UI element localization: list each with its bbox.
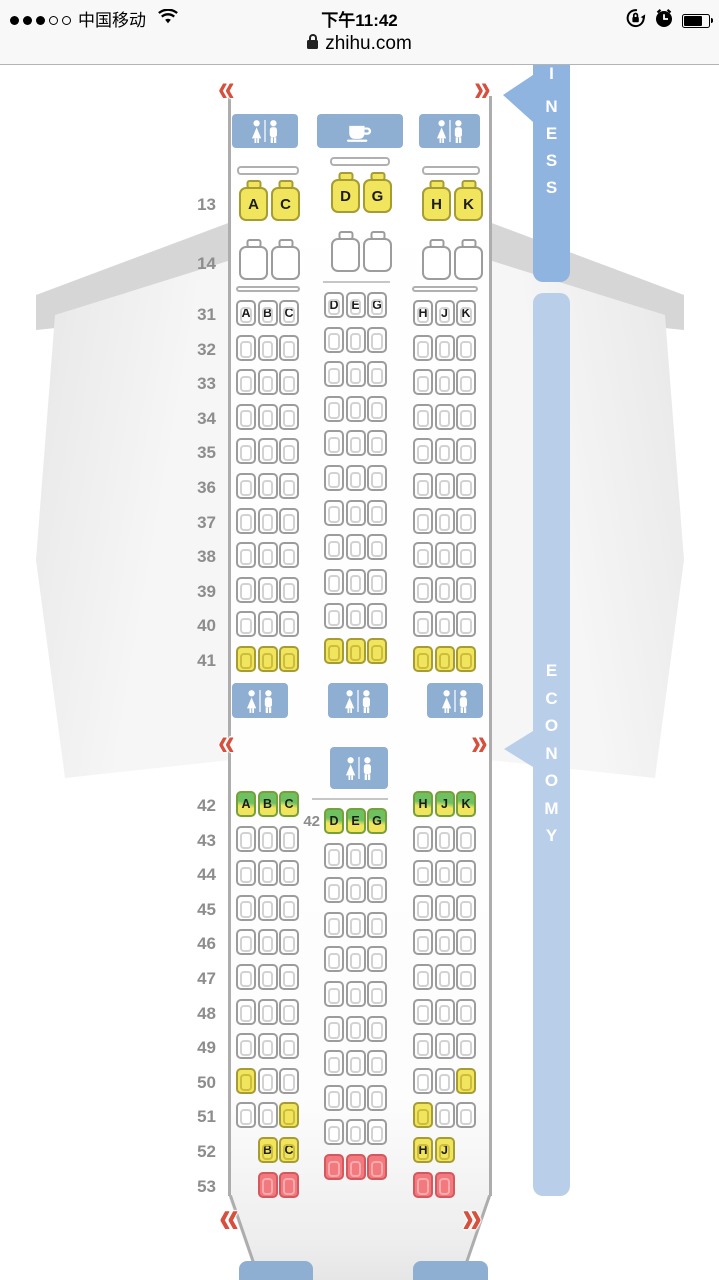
- seat-43D[interactable]: [324, 843, 344, 869]
- seat-40H[interactable]: [413, 611, 433, 637]
- seat-cushion: [283, 514, 295, 530]
- seat-34G[interactable]: [367, 396, 387, 422]
- seat-48A[interactable]: [236, 999, 256, 1025]
- seat-52C[interactable]: C: [279, 1137, 299, 1163]
- seat-37B[interactable]: [258, 508, 278, 534]
- seat-34E[interactable]: [346, 396, 366, 422]
- seat-cushion: [350, 1057, 362, 1073]
- seat-44C[interactable]: [279, 860, 299, 886]
- seat-49A[interactable]: [236, 1033, 256, 1059]
- seat-36J[interactable]: [435, 473, 455, 499]
- exit-chevron-right-icon: »: [474, 68, 491, 111]
- seat-14K[interactable]: [454, 246, 483, 280]
- seat-cushion: [371, 1091, 383, 1107]
- economy-band-letter: C: [533, 689, 570, 709]
- seat-41A[interactable]: [236, 646, 256, 672]
- economy-band-letter: O: [533, 771, 570, 791]
- seat-cushion: [283, 376, 295, 392]
- seat-35H[interactable]: [413, 438, 433, 464]
- seat-50J[interactable]: [435, 1068, 455, 1094]
- business-band-arrow-icon: [503, 75, 533, 122]
- seat-37H[interactable]: [413, 508, 433, 534]
- seat-cushion: [328, 884, 340, 900]
- seat-32H[interactable]: [413, 335, 433, 361]
- seat-47A[interactable]: [236, 964, 256, 990]
- seat-44K[interactable]: [456, 860, 476, 886]
- seat-45A[interactable]: [236, 895, 256, 921]
- rotation-lock-icon: [625, 8, 646, 33]
- seat-48H[interactable]: [413, 999, 433, 1025]
- seat-41C[interactable]: [279, 646, 299, 672]
- seat-45C[interactable]: [279, 895, 299, 921]
- economy-band-letter: O: [533, 716, 570, 736]
- seat-35C[interactable]: [279, 438, 299, 464]
- seat-cushion: [371, 610, 383, 626]
- seat-47E[interactable]: [346, 981, 366, 1007]
- seat-cushion: [371, 402, 383, 418]
- seat-35D[interactable]: [324, 430, 344, 456]
- seat-50E[interactable]: [346, 1085, 366, 1111]
- seat-50D[interactable]: [324, 1085, 344, 1111]
- seat-cushion: [283, 653, 295, 669]
- seat-42D[interactable]: D: [324, 808, 344, 834]
- seat-38K[interactable]: [456, 542, 476, 568]
- seat-35B[interactable]: [258, 438, 278, 464]
- seat-41E[interactable]: [346, 638, 366, 664]
- seat-43K[interactable]: [456, 826, 476, 852]
- seat-cushion: [350, 849, 362, 865]
- seat-38E[interactable]: [346, 534, 366, 560]
- seat-46B[interactable]: [258, 929, 278, 955]
- url-bar[interactable]: zhihu.com: [0, 33, 719, 55]
- seat-cushion: [262, 1109, 274, 1125]
- seat-41H[interactable]: [413, 646, 433, 672]
- seat-38B[interactable]: [258, 542, 278, 568]
- seat-46E[interactable]: [346, 946, 366, 972]
- seat-37G[interactable]: [367, 500, 387, 526]
- seat-45K[interactable]: [456, 895, 476, 921]
- seat-53H[interactable]: [413, 1172, 433, 1198]
- seat-40E[interactable]: [346, 603, 366, 629]
- seat-40G[interactable]: [367, 603, 387, 629]
- seat-35E[interactable]: [346, 430, 366, 456]
- seat-48G[interactable]: [367, 1016, 387, 1042]
- seat-cushion: [240, 653, 252, 669]
- seat-51K[interactable]: [456, 1102, 476, 1128]
- seat-48J[interactable]: [435, 999, 455, 1025]
- seat-31H[interactable]: H: [413, 300, 433, 326]
- seat-49B[interactable]: [258, 1033, 278, 1059]
- seat-32B[interactable]: [258, 335, 278, 361]
- seat-36G[interactable]: [367, 465, 387, 491]
- seat-cushion: [439, 901, 451, 917]
- seat-42G[interactable]: G: [367, 808, 387, 834]
- seat-45J[interactable]: [435, 895, 455, 921]
- seat-31K[interactable]: K: [456, 300, 476, 326]
- seat-headrest: [429, 239, 444, 248]
- seat-cushion: [350, 1161, 362, 1177]
- galley: [317, 114, 403, 148]
- seat-44B[interactable]: [258, 860, 278, 886]
- seat-46G[interactable]: [367, 946, 387, 972]
- seat-42K[interactable]: K: [456, 791, 476, 817]
- seat-37A[interactable]: [236, 508, 256, 534]
- seat-53B[interactable]: [258, 1172, 278, 1198]
- seat-cushion: [439, 1040, 451, 1056]
- seat-38G[interactable]: [367, 534, 387, 560]
- seat-letter: J: [441, 797, 448, 811]
- seat-46D[interactable]: [324, 946, 344, 972]
- seat-51J[interactable]: [435, 1102, 455, 1128]
- seat-cushion: [283, 1144, 295, 1160]
- seat-48C[interactable]: [279, 999, 299, 1025]
- seat-52J[interactable]: J: [435, 1137, 455, 1163]
- seat-36C[interactable]: [279, 473, 299, 499]
- seat-44H[interactable]: [413, 860, 433, 886]
- seat-49E[interactable]: [346, 1050, 366, 1076]
- seat-43G[interactable]: [367, 843, 387, 869]
- seat-headrest: [461, 239, 476, 248]
- seat-45B[interactable]: [258, 895, 278, 921]
- seat-14C[interactable]: [271, 246, 300, 280]
- exit-chevron-left-icon: «: [218, 68, 235, 111]
- seat-37D[interactable]: [324, 500, 344, 526]
- seat-33J[interactable]: [435, 369, 455, 395]
- seat-51H[interactable]: [413, 1102, 433, 1128]
- seat-cushion: [240, 901, 252, 917]
- seat-cushion: [417, 971, 429, 987]
- seat-cushion: [417, 1144, 429, 1160]
- seat-cushion: [328, 333, 340, 349]
- seat-cushion: [283, 480, 295, 496]
- seat-cushion: [439, 583, 451, 599]
- seat-48K[interactable]: [456, 999, 476, 1025]
- seat-47J[interactable]: [435, 964, 455, 990]
- seat-39B[interactable]: [258, 577, 278, 603]
- seat-37C[interactable]: [279, 508, 299, 534]
- seat-41G[interactable]: [367, 638, 387, 664]
- seat-14G[interactable]: [363, 238, 392, 272]
- seat-43B[interactable]: [258, 826, 278, 852]
- seat-cushion: [262, 410, 274, 426]
- seat-38C[interactable]: [279, 542, 299, 568]
- seat-37J[interactable]: [435, 508, 455, 534]
- business-band-letter: S: [533, 178, 570, 198]
- seat-32A[interactable]: [236, 335, 256, 361]
- seat-35K[interactable]: [456, 438, 476, 464]
- seat-cushion: [283, 1040, 295, 1056]
- seat-51G[interactable]: [367, 1119, 387, 1145]
- seat-49J[interactable]: [435, 1033, 455, 1059]
- seat-36E[interactable]: [346, 465, 366, 491]
- seat-49G[interactable]: [367, 1050, 387, 1076]
- seat-52H[interactable]: H: [413, 1137, 433, 1163]
- seat-39G[interactable]: [367, 569, 387, 595]
- seat-49C[interactable]: [279, 1033, 299, 1059]
- seat-40D[interactable]: [324, 603, 344, 629]
- seat-cushion: [262, 480, 274, 496]
- seat-44J[interactable]: [435, 860, 455, 886]
- seat-33E[interactable]: [346, 361, 366, 387]
- seat-33C[interactable]: [279, 369, 299, 395]
- seat-43J[interactable]: [435, 826, 455, 852]
- bulkhead-bar: [330, 157, 390, 166]
- seat-40B[interactable]: [258, 611, 278, 637]
- seat-53J[interactable]: [435, 1172, 455, 1198]
- seat-50B[interactable]: [258, 1068, 278, 1094]
- seat-32G[interactable]: [367, 327, 387, 353]
- seat-35J[interactable]: [435, 438, 455, 464]
- seat-cushion: [439, 410, 451, 426]
- seat-headrest: [429, 180, 444, 189]
- seat-40A[interactable]: [236, 611, 256, 637]
- seat-39A[interactable]: [236, 577, 256, 603]
- seat-cushion: [460, 936, 472, 952]
- seat-49K[interactable]: [456, 1033, 476, 1059]
- seat-43H[interactable]: [413, 826, 433, 852]
- seat-52D[interactable]: [324, 1154, 344, 1180]
- center-row-number-label: 42: [294, 813, 320, 830]
- seat-34H[interactable]: [413, 404, 433, 430]
- seat-31G[interactable]: G: [367, 292, 387, 318]
- exit-chevron-right-icon: »: [471, 722, 488, 765]
- seat-32J[interactable]: [435, 335, 455, 361]
- seat-42H[interactable]: H: [413, 791, 433, 817]
- seat-cushion: [262, 514, 274, 530]
- seat-cushion: [350, 472, 362, 488]
- seat-13C[interactable]: C: [271, 187, 300, 221]
- seat-37K[interactable]: [456, 508, 476, 534]
- seat-31J[interactable]: J: [435, 300, 455, 326]
- seat-cushion: [262, 307, 274, 323]
- seat-37E[interactable]: [346, 500, 366, 526]
- seat-cushion: [439, 1074, 451, 1090]
- seat-cushion: [240, 1109, 252, 1125]
- seat-13K[interactable]: K: [454, 187, 483, 221]
- seat-39J[interactable]: [435, 577, 455, 603]
- seat-42A[interactable]: A: [236, 791, 256, 817]
- seat-33H[interactable]: [413, 369, 433, 395]
- seat-letter: C: [280, 196, 291, 213]
- seat-14D[interactable]: [331, 238, 360, 272]
- seat-36B[interactable]: [258, 473, 278, 499]
- seat-34C[interactable]: [279, 404, 299, 430]
- seat-32K[interactable]: [456, 335, 476, 361]
- fuselage-wall-right: [489, 96, 492, 1196]
- seat-48D[interactable]: [324, 1016, 344, 1042]
- seat-34D[interactable]: [324, 396, 344, 422]
- seat-36A[interactable]: [236, 473, 256, 499]
- seat-cushion: [417, 410, 429, 426]
- seat-42J[interactable]: J: [435, 791, 455, 817]
- row-number-label: 44: [186, 865, 216, 885]
- seat-44E[interactable]: [346, 877, 366, 903]
- seat-39E[interactable]: [346, 569, 366, 595]
- seat-cushion: [283, 1178, 295, 1194]
- seat-38D[interactable]: [324, 534, 344, 560]
- seat-51D[interactable]: [324, 1119, 344, 1145]
- seat-35A[interactable]: [236, 438, 256, 464]
- seat-letter: H: [418, 797, 427, 811]
- seat-39D[interactable]: [324, 569, 344, 595]
- seat-cushion: [371, 506, 383, 522]
- seat-cushion: [350, 610, 362, 626]
- seat-cushion: [371, 918, 383, 934]
- seat-48B[interactable]: [258, 999, 278, 1025]
- seat-51A[interactable]: [236, 1102, 256, 1128]
- seat-50A[interactable]: [236, 1068, 256, 1094]
- seat-47D[interactable]: [324, 981, 344, 1007]
- seat-47K[interactable]: [456, 964, 476, 990]
- seat-34B[interactable]: [258, 404, 278, 430]
- seat-32E[interactable]: [346, 327, 366, 353]
- seat-47B[interactable]: [258, 964, 278, 990]
- seat-31D[interactable]: D: [324, 292, 344, 318]
- seat-44G[interactable]: [367, 877, 387, 903]
- seat-38J[interactable]: [435, 542, 455, 568]
- seat-cushion: [439, 514, 451, 530]
- seat-51C[interactable]: [279, 1102, 299, 1128]
- seat-cushion: [240, 341, 252, 357]
- seat-52B[interactable]: B: [258, 1137, 278, 1163]
- seat-42B[interactable]: B: [258, 791, 278, 817]
- seat-52G[interactable]: [367, 1154, 387, 1180]
- clock-time-label: 下午11:42: [0, 6, 719, 31]
- seat-46K[interactable]: [456, 929, 476, 955]
- seat-31A[interactable]: A: [236, 300, 256, 326]
- seat-cushion: [460, 618, 472, 634]
- seat-headrest: [338, 172, 353, 181]
- seat-46C[interactable]: [279, 929, 299, 955]
- seat-49D[interactable]: [324, 1050, 344, 1076]
- seat-32D[interactable]: [324, 327, 344, 353]
- seat-letter: K: [461, 797, 470, 811]
- seat-46J[interactable]: [435, 929, 455, 955]
- seat-40K[interactable]: [456, 611, 476, 637]
- seat-32C[interactable]: [279, 335, 299, 361]
- seat-cushion: [417, 1109, 429, 1125]
- seat-43A[interactable]: [236, 826, 256, 852]
- seat-cushion: [371, 472, 383, 488]
- seat-cushion: [460, 1040, 472, 1056]
- seat-cushion: [240, 514, 252, 530]
- seat-41J[interactable]: [435, 646, 455, 672]
- seat-13D[interactable]: D: [331, 179, 360, 213]
- seat-45D[interactable]: [324, 912, 344, 938]
- seat-51E[interactable]: [346, 1119, 366, 1145]
- seat-47H[interactable]: [413, 964, 433, 990]
- seat-cushion: [283, 971, 295, 987]
- seat-13H[interactable]: H: [422, 187, 451, 221]
- seat-cushion: [328, 645, 340, 661]
- seat-53C[interactable]: [279, 1172, 299, 1198]
- seat-45H[interactable]: [413, 895, 433, 921]
- seat-cushion: [262, 971, 274, 987]
- row-number-label: 49: [186, 1038, 216, 1058]
- seat-50C[interactable]: [279, 1068, 299, 1094]
- seat-cushion: [328, 610, 340, 626]
- seat-cushion: [283, 618, 295, 634]
- seat-41K[interactable]: [456, 646, 476, 672]
- seat-52E[interactable]: [346, 1154, 366, 1180]
- seat-41D[interactable]: [324, 638, 344, 664]
- seat-49H[interactable]: [413, 1033, 433, 1059]
- seat-46A[interactable]: [236, 929, 256, 955]
- divider-line: [323, 281, 390, 283]
- seat-cushion: [439, 341, 451, 357]
- seat-33G[interactable]: [367, 361, 387, 387]
- galley: [239, 1261, 313, 1280]
- seat-36K[interactable]: [456, 473, 476, 499]
- seat-39C[interactable]: [279, 577, 299, 603]
- seat-50H[interactable]: [413, 1068, 433, 1094]
- seat-34A[interactable]: [236, 404, 256, 430]
- seat-44A[interactable]: [236, 860, 256, 886]
- seat-headrest: [338, 231, 353, 240]
- seat-cushion: [371, 849, 383, 865]
- seat-33A[interactable]: [236, 369, 256, 395]
- seat-cushion: [439, 1144, 451, 1160]
- seat-33K[interactable]: [456, 369, 476, 395]
- seat-31B[interactable]: B: [258, 300, 278, 326]
- seat-50K[interactable]: [456, 1068, 476, 1094]
- seat-35G[interactable]: [367, 430, 387, 456]
- seat-46H[interactable]: [413, 929, 433, 955]
- seat-36D[interactable]: [324, 465, 344, 491]
- seat-cushion: [328, 541, 340, 557]
- seat-50G[interactable]: [367, 1085, 387, 1111]
- seat-34J[interactable]: [435, 404, 455, 430]
- seat-42E[interactable]: E: [346, 808, 366, 834]
- seat-47C[interactable]: [279, 964, 299, 990]
- seat-36H[interactable]: [413, 473, 433, 499]
- seat-34K[interactable]: [456, 404, 476, 430]
- seat-cushion: [371, 437, 383, 453]
- seat-14H[interactable]: [422, 246, 451, 280]
- seat-51B[interactable]: [258, 1102, 278, 1128]
- seat-31C[interactable]: C: [279, 300, 299, 326]
- seat-39K[interactable]: [456, 577, 476, 603]
- seat-38A[interactable]: [236, 542, 256, 568]
- seat-39H[interactable]: [413, 577, 433, 603]
- seat-48E[interactable]: [346, 1016, 366, 1042]
- seat-cushion: [240, 480, 252, 496]
- seat-41B[interactable]: [258, 646, 278, 672]
- seat-40C[interactable]: [279, 611, 299, 637]
- seat-45G[interactable]: [367, 912, 387, 938]
- seat-40J[interactable]: [435, 611, 455, 637]
- seat-cushion: [350, 1022, 362, 1038]
- seat-45E[interactable]: [346, 912, 366, 938]
- seat-cushion: [350, 884, 362, 900]
- seat-31E[interactable]: E: [346, 292, 366, 318]
- seat-44D[interactable]: [324, 877, 344, 903]
- seat-13A[interactable]: A: [239, 187, 268, 221]
- row-number-label: 39: [186, 582, 216, 602]
- seat-letter: E: [351, 814, 359, 828]
- seat-headrest: [370, 172, 385, 181]
- seat-47G[interactable]: [367, 981, 387, 1007]
- seat-33D[interactable]: [324, 361, 344, 387]
- seat-33B[interactable]: [258, 369, 278, 395]
- row-number-label: 51: [186, 1107, 216, 1127]
- seat-38H[interactable]: [413, 542, 433, 568]
- seat-14A[interactable]: [239, 246, 268, 280]
- seat-cushion: [328, 402, 340, 418]
- economy-band-letter: Y: [533, 826, 570, 846]
- seat-43E[interactable]: [346, 843, 366, 869]
- seat-13G[interactable]: G: [363, 179, 392, 213]
